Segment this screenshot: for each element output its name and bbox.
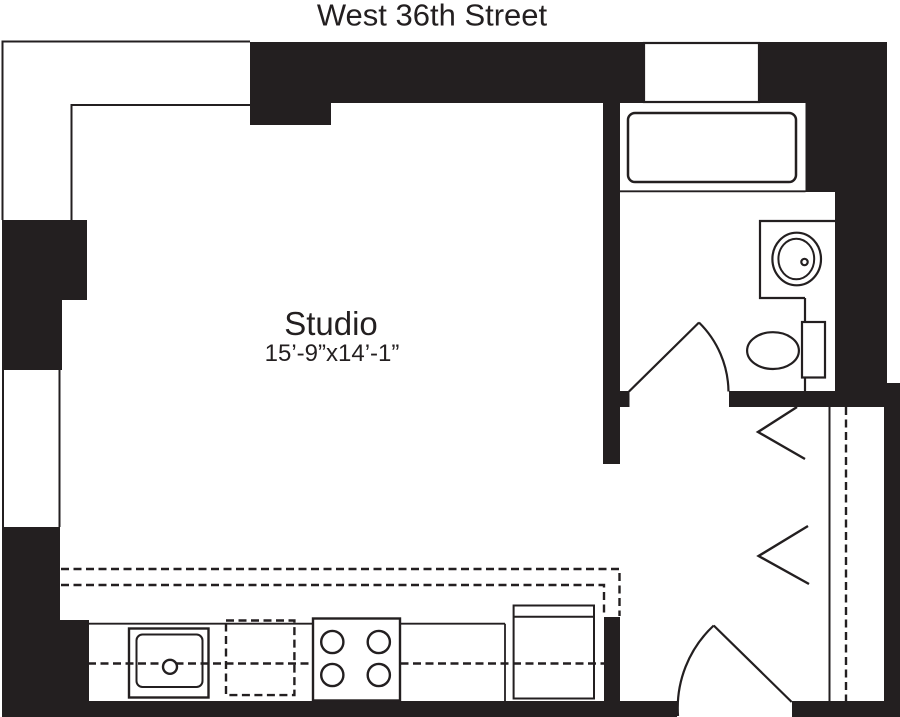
svg-text:West 36th Street: West 36th Street <box>317 0 548 33</box>
svg-text:Studio: Studio <box>284 305 378 342</box>
svg-text:15’-9”x14’-1”: 15’-9”x14’-1” <box>265 340 400 367</box>
